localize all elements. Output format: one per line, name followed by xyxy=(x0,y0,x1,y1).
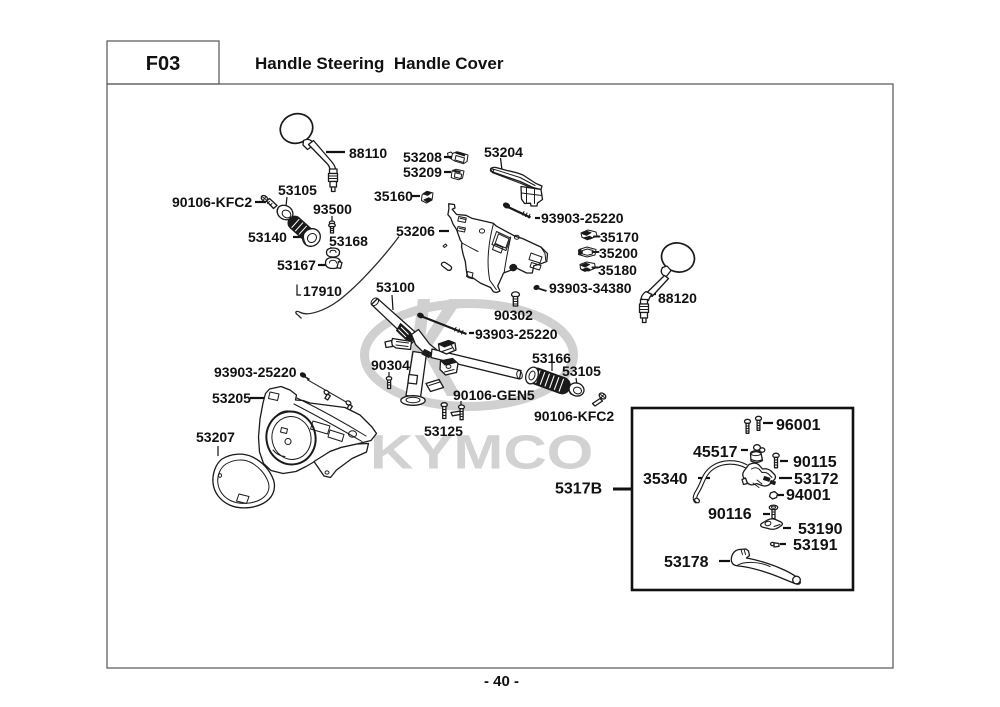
svg-text:96001: 96001 xyxy=(776,417,821,434)
svg-text:93903-25220: 93903-25220 xyxy=(214,364,297,380)
svg-text:90304: 90304 xyxy=(371,357,410,373)
svg-text:53125: 53125 xyxy=(424,423,463,439)
svg-text:53167: 53167 xyxy=(277,257,316,273)
svg-text:53100: 53100 xyxy=(376,279,415,295)
svg-text:53191: 53191 xyxy=(793,537,838,554)
svg-text:53172: 53172 xyxy=(794,471,839,488)
svg-text:90115: 90115 xyxy=(793,454,837,471)
svg-text:88110: 88110 xyxy=(349,145,387,161)
svg-text:KYMCO: KYMCO xyxy=(370,425,593,479)
svg-text:93500: 93500 xyxy=(313,201,352,217)
svg-text:53168: 53168 xyxy=(329,233,368,249)
svg-text:53209: 53209 xyxy=(403,164,442,180)
svg-text:35200: 35200 xyxy=(599,245,638,261)
svg-text:94001: 94001 xyxy=(786,487,831,504)
svg-text:53204: 53204 xyxy=(484,144,523,160)
svg-text:88120: 88120 xyxy=(658,290,697,306)
svg-text:53205: 53205 xyxy=(212,390,251,406)
svg-text:45517: 45517 xyxy=(693,444,738,461)
svg-text:17910: 17910 xyxy=(303,283,342,299)
svg-text:53207: 53207 xyxy=(196,429,235,445)
svg-text:53190: 53190 xyxy=(798,521,843,538)
svg-text:53178: 53178 xyxy=(664,554,709,571)
svg-text:53105: 53105 xyxy=(562,363,601,379)
svg-text:35170: 35170 xyxy=(600,229,639,245)
svg-text:93903-34380: 93903-34380 xyxy=(549,280,632,296)
svg-text:93903-25220: 93903-25220 xyxy=(541,210,624,226)
svg-text:90106-KFC2: 90106-KFC2 xyxy=(534,408,614,424)
svg-text:90106-GEN5: 90106-GEN5 xyxy=(453,387,535,403)
svg-text:90302: 90302 xyxy=(494,307,533,323)
svg-text:90106-KFC2: 90106-KFC2 xyxy=(172,194,252,210)
svg-text:- 40 -: - 40 - xyxy=(484,673,519,690)
svg-text:53105: 53105 xyxy=(278,182,317,198)
svg-text:Handle Steering Handle Cover: Handle Steering Handle Cover xyxy=(255,54,504,73)
svg-text:35340: 35340 xyxy=(643,471,688,488)
svg-text:F03: F03 xyxy=(146,53,180,75)
svg-text:35160: 35160 xyxy=(374,188,413,204)
svg-text:5317B: 5317B xyxy=(555,481,602,498)
svg-text:53208: 53208 xyxy=(403,149,442,165)
svg-text:53206: 53206 xyxy=(396,223,435,239)
svg-text:93903-25220: 93903-25220 xyxy=(475,326,558,342)
svg-text:35180: 35180 xyxy=(598,262,637,278)
svg-text:53140: 53140 xyxy=(248,229,287,245)
svg-text:90116: 90116 xyxy=(708,506,752,523)
